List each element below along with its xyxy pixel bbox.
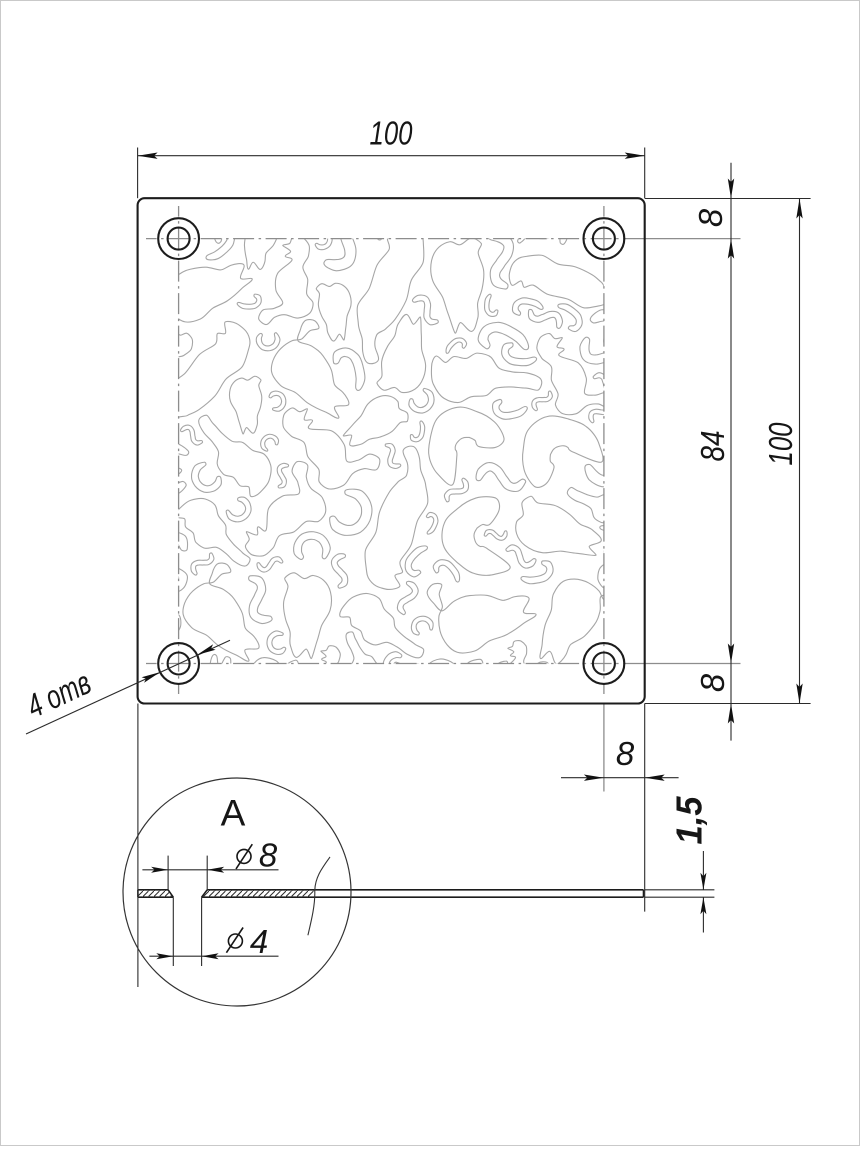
svg-text:8: 8 xyxy=(694,673,731,692)
svg-text:1,5: 1,5 xyxy=(669,796,710,845)
svg-text:100: 100 xyxy=(762,422,799,466)
svg-text:4: 4 xyxy=(250,923,268,960)
svg-text:100: 100 xyxy=(370,115,414,152)
svg-text:8: 8 xyxy=(692,208,729,227)
svg-text:84: 84 xyxy=(694,431,731,462)
svg-text:8: 8 xyxy=(259,837,278,874)
svg-text:8: 8 xyxy=(616,735,635,772)
svg-text:A: A xyxy=(221,793,246,834)
